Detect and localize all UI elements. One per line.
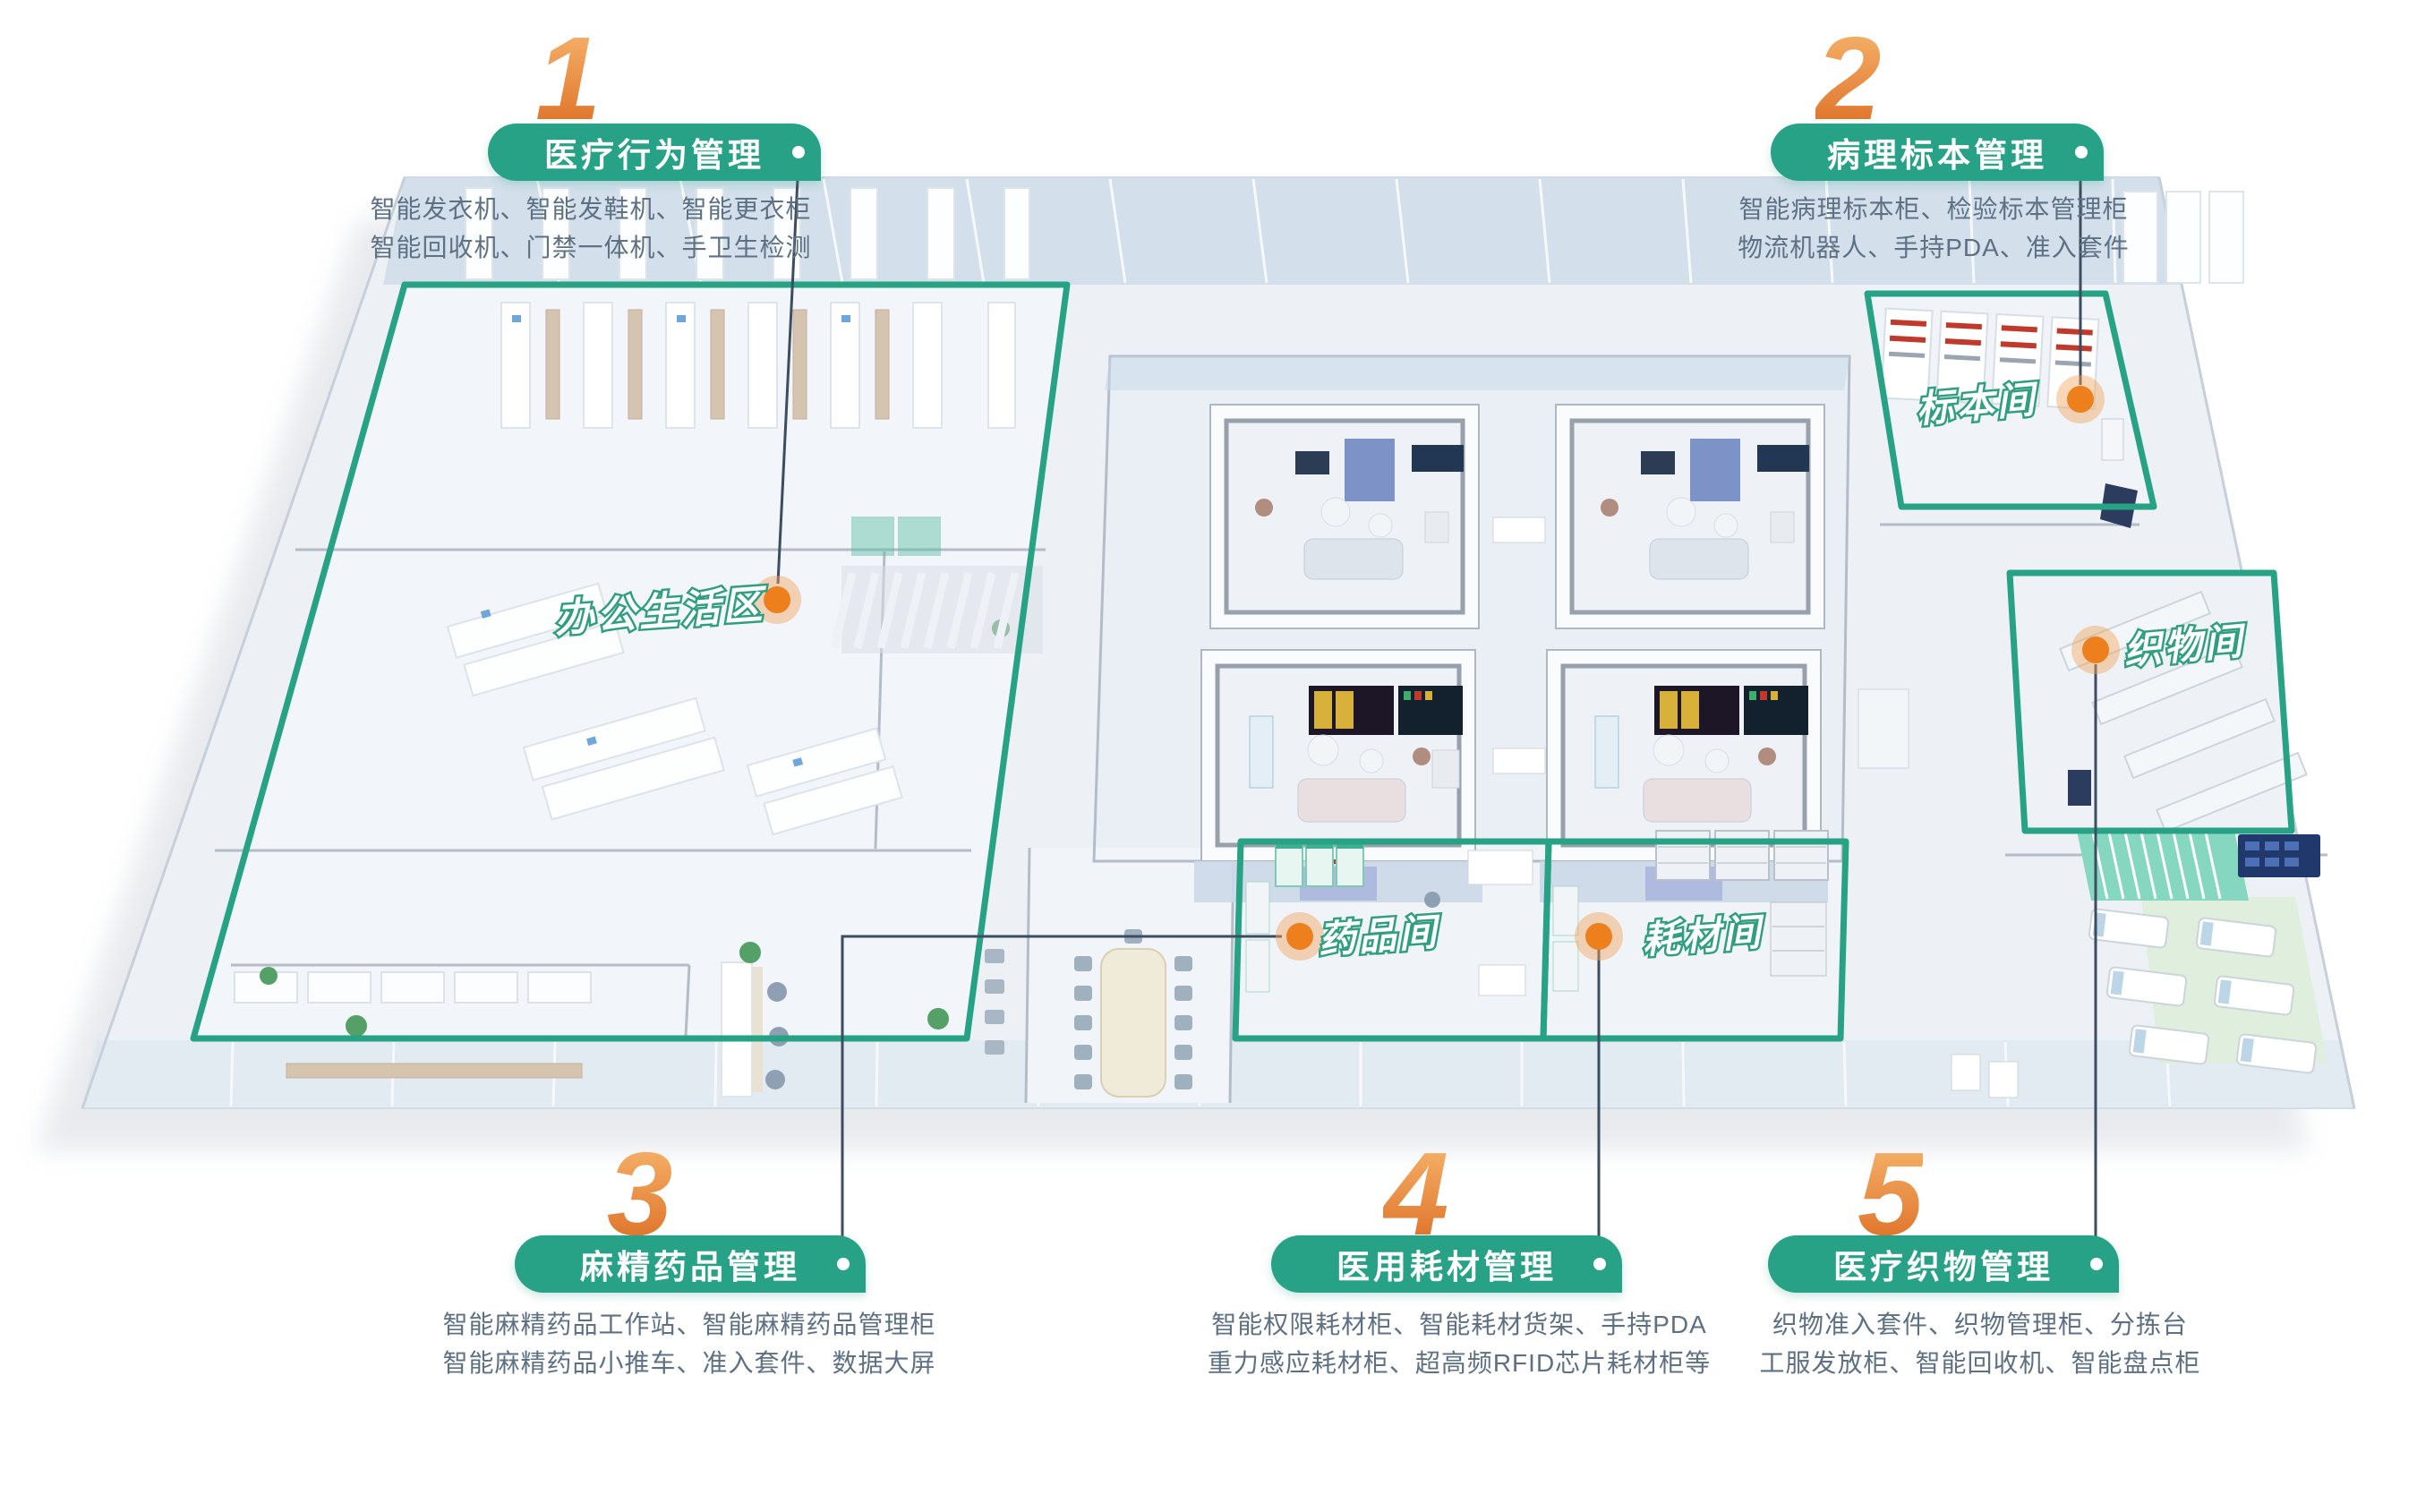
section-4-description: 智能权限耗材柜、智能耗材货架、手持PDA 重力感应耗材柜、超高频RFID芯片耗材… bbox=[1208, 1305, 1711, 1382]
description-line: 智能麻精药品工作站、智能麻精药品管理柜 bbox=[442, 1305, 935, 1344]
glass-wall bbox=[1105, 356, 1849, 390]
section-5-description: 织物准入套件、织物管理柜、分拣台 工服发放柜、智能回收机、智能盘点柜 bbox=[1759, 1305, 2200, 1382]
section-1-description: 智能发衣机、智能发鞋机、智能更衣柜 智能回收机、门禁一体机、手卫生检测 bbox=[370, 190, 811, 267]
description-line: 物流机器人、手持PDA、准入套件 bbox=[1738, 228, 2130, 267]
badge-medical-behavior-label: 医疗行为管理 bbox=[544, 128, 764, 176]
section-2-description: 智能病理标本柜、检验标本管理柜 物流机器人、手持PDA、准入套件 bbox=[1738, 190, 2130, 267]
badge-connector-dot bbox=[792, 146, 805, 158]
label-consumable: 耗材间 bbox=[1641, 910, 1767, 961]
description-line: 智能麻精药品小推车、准入套件、数据大屏 bbox=[442, 1344, 935, 1382]
badge-pathology-specimen-label: 病理标本管理 bbox=[1827, 128, 2047, 176]
badge-medical-consumable-label: 医用耗材管理 bbox=[1337, 1240, 1557, 1288]
section-3-description: 智能麻精药品工作站、智能麻精药品管理柜 智能麻精药品小推车、准入套件、数据大屏 bbox=[442, 1305, 935, 1382]
badge-medical-fabric: 医疗织物管理 bbox=[1768, 1235, 2119, 1293]
section-1-number: 1 bbox=[535, 20, 601, 138]
badge-medical-fabric-label: 医疗织物管理 bbox=[1833, 1240, 2054, 1288]
badge-connector-dot bbox=[2090, 1258, 2103, 1270]
label-drug: 药品间 bbox=[1317, 910, 1443, 961]
badge-medical-behavior: 医疗行为管理 bbox=[488, 124, 821, 181]
badge-connector-dot bbox=[837, 1258, 850, 1270]
description-line: 织物准入套件、织物管理柜、分拣台 bbox=[1759, 1305, 2200, 1344]
description-line: 工服发放柜、智能回收机、智能盘点柜 bbox=[1759, 1344, 2200, 1382]
badge-narcotic-drug-label: 麻精药品管理 bbox=[580, 1240, 800, 1288]
bench bbox=[286, 1064, 582, 1078]
marker-consumable bbox=[1575, 912, 1623, 961]
description-line: 智能病理标本柜、检验标本管理柜 bbox=[1738, 190, 2130, 228]
description-line: 智能回收机、门禁一体机、手卫生检测 bbox=[370, 228, 811, 267]
badge-narcotic-drug: 麻精药品管理 bbox=[515, 1235, 866, 1293]
badge-pathology-specimen: 病理标本管理 bbox=[1771, 124, 2104, 181]
badge-connector-dot bbox=[1593, 1258, 1606, 1270]
description-line: 重力感应耗材柜、超高频RFID芯片耗材柜等 bbox=[1208, 1344, 1711, 1382]
section-2-number: 2 bbox=[1815, 20, 1881, 138]
marker-fabric bbox=[2071, 626, 2120, 674]
marker-specimen bbox=[2056, 375, 2105, 423]
badge-medical-consumable: 医用耗材管理 bbox=[1271, 1235, 1622, 1293]
description-line: 智能权限耗材柜、智能耗材货架、手持PDA bbox=[1208, 1305, 1711, 1344]
description-line: 智能发衣机、智能发鞋机、智能更衣柜 bbox=[370, 190, 811, 228]
badge-connector-dot bbox=[2075, 146, 2088, 158]
infographic-canvas: 办公生活区 标本间 织物间 药品间 耗材间 1 2 3 4 5 医疗行为管理 病… bbox=[0, 0, 2417, 1512]
